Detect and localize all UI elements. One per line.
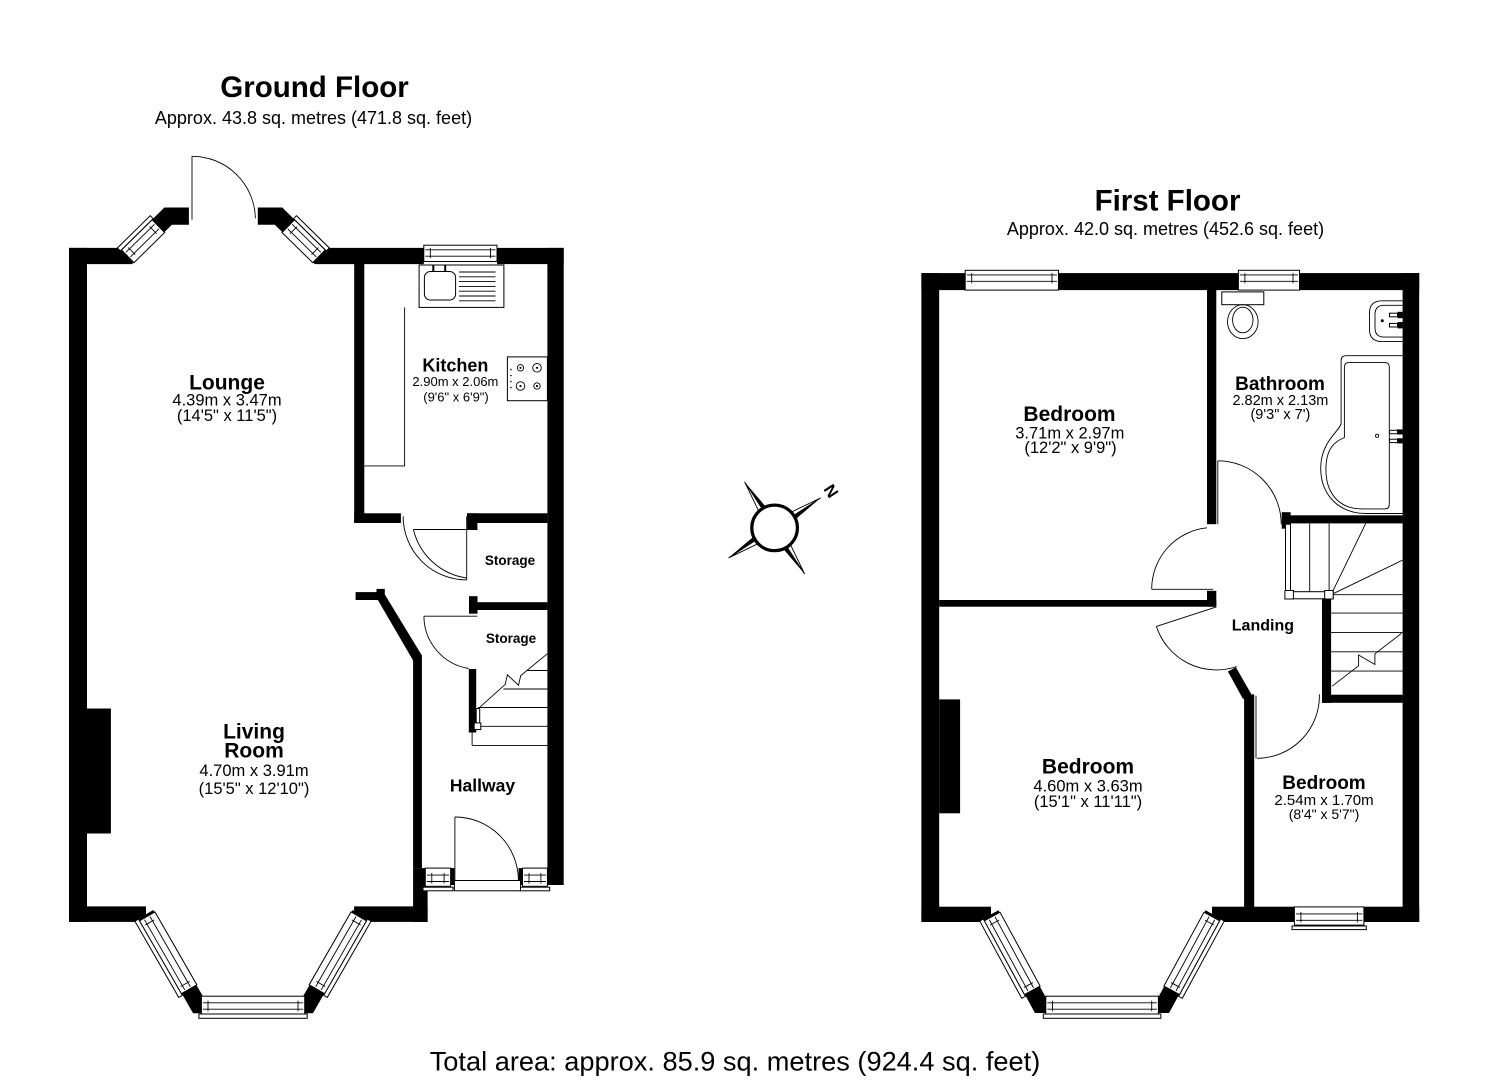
svg-text:Approx. 43.8 sq. metres (471.8: Approx. 43.8 sq. metres (471.8 sq. feet): [155, 108, 472, 128]
svg-text:Kitchen: Kitchen: [422, 356, 488, 376]
svg-text:Landing: Landing: [1232, 618, 1294, 635]
svg-text:4.70m x 3.91m: 4.70m x 3.91m: [199, 762, 308, 780]
svg-text:Hallway: Hallway: [450, 776, 515, 796]
svg-text:(15'1" x 11'11"): (15'1" x 11'11"): [1034, 793, 1142, 811]
svg-text:Bathroom: Bathroom: [1235, 374, 1325, 395]
svg-text:Storage: Storage: [485, 553, 536, 568]
svg-text:(9'6" x 6'9"): (9'6" x 6'9"): [423, 390, 489, 405]
svg-text:Bedroom: Bedroom: [1282, 773, 1365, 794]
svg-text:(12'2" x 9'9"): (12'2" x 9'9"): [1024, 439, 1116, 457]
svg-text:(9'3" x 7'): (9'3" x 7'): [1250, 407, 1310, 423]
svg-text:Ground Floor: Ground Floor: [220, 71, 409, 104]
svg-text:(15'5" x 12'10"): (15'5" x 12'10"): [199, 780, 310, 798]
svg-text:Bedroom: Bedroom: [1023, 403, 1115, 426]
svg-text:First Floor: First Floor: [1095, 185, 1241, 218]
svg-text:2.90m x 2.06m: 2.90m x 2.06m: [412, 374, 498, 389]
svg-text:Storage: Storage: [486, 631, 537, 646]
svg-text:Room: Room: [224, 740, 284, 763]
svg-text:Bedroom: Bedroom: [1042, 756, 1134, 779]
svg-text:Total area: approx. 85.9 sq. m: Total area: approx. 85.9 sq. metres (924…: [430, 1046, 1041, 1077]
svg-text:(8'4" x 5'7"): (8'4" x 5'7"): [1289, 806, 1360, 822]
svg-text:(14'5" x 11'5"): (14'5" x 11'5"): [177, 407, 277, 425]
svg-text:Approx. 42.0 sq. metres (452.6: Approx. 42.0 sq. metres (452.6 sq. feet): [1007, 219, 1324, 239]
